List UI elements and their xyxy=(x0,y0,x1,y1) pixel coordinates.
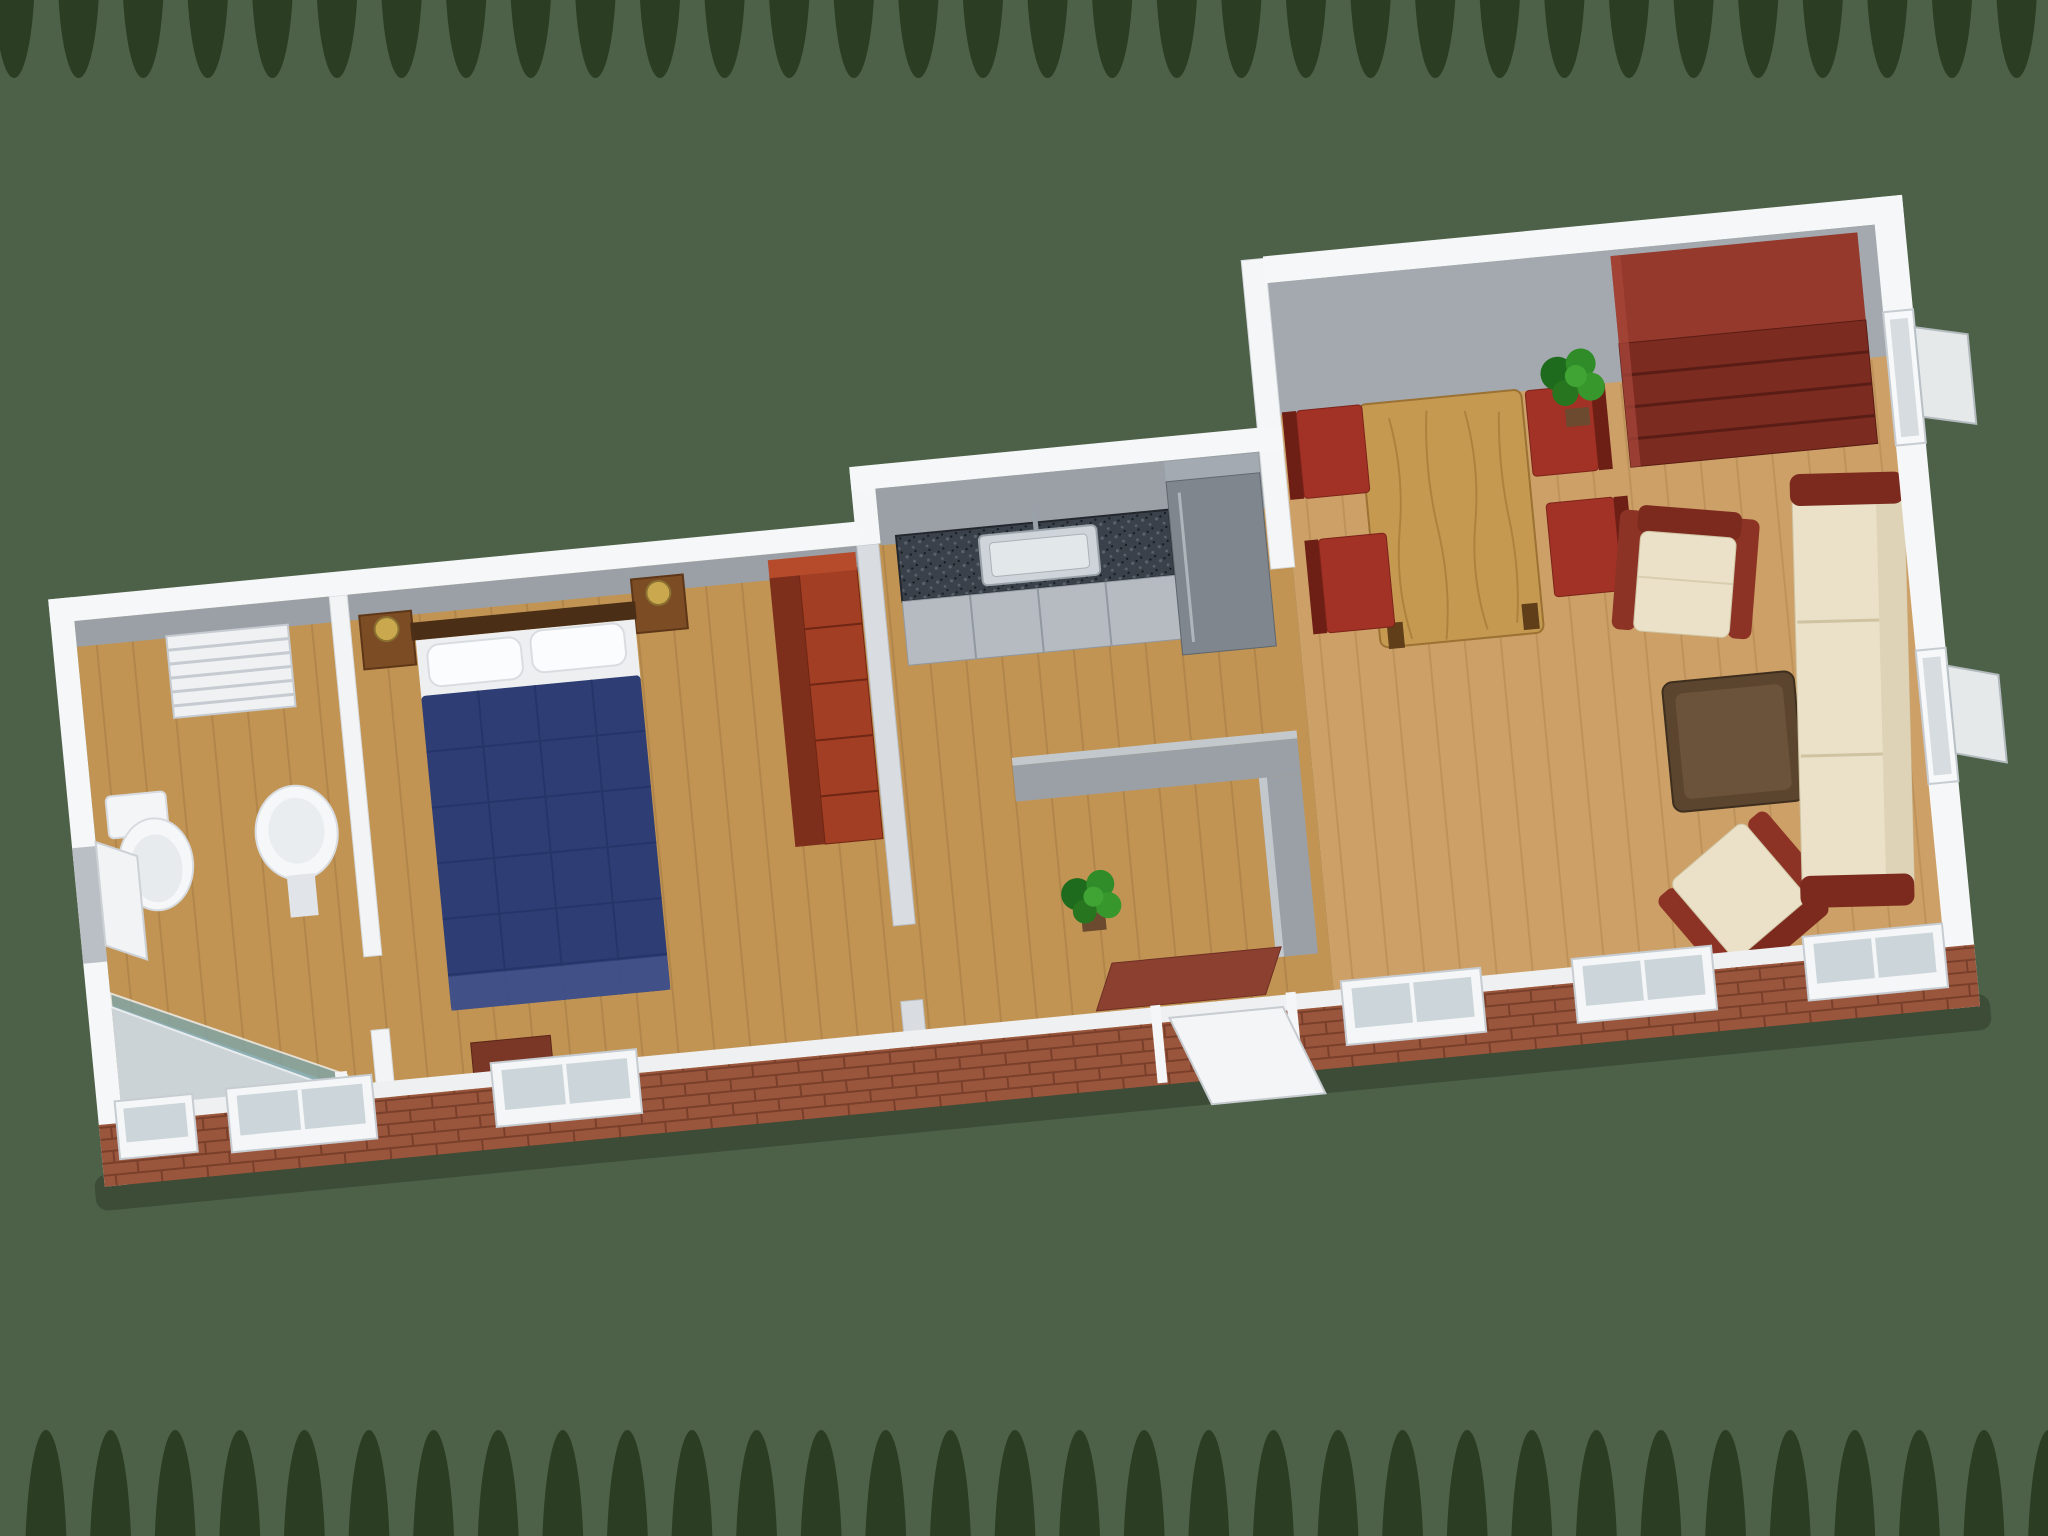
armchair-top xyxy=(1611,503,1760,640)
sofa-arm-top xyxy=(1789,471,1904,506)
dining-table-leg-right xyxy=(1521,603,1539,630)
coffee-table-top xyxy=(1675,684,1793,800)
bed-pillow-right xyxy=(529,622,627,673)
dining-chair-1-seat xyxy=(1296,405,1370,499)
sofa-arm-bottom xyxy=(1800,873,1915,908)
sofa xyxy=(1789,471,1914,908)
bed-pillow-left xyxy=(426,636,524,687)
sideboard-front xyxy=(1619,320,1878,467)
lamp-right xyxy=(645,580,671,606)
armchair-top-body xyxy=(1633,531,1737,638)
floor-plan-stage: 3D isometric floor plan render of a one-… xyxy=(0,0,2048,1536)
dining-chair-4-seat xyxy=(1546,497,1623,597)
dining-plant-pot xyxy=(1565,407,1591,427)
window-right-2-open-pane xyxy=(1947,661,2007,767)
fridge xyxy=(1166,473,1276,655)
kitchen-faucet xyxy=(1034,511,1036,531)
window-bottom-0-glass xyxy=(123,1103,188,1143)
sink-pedestal xyxy=(287,873,319,917)
lamp-left xyxy=(373,616,399,642)
window-right-1-open-pane xyxy=(1915,322,1977,429)
dining-chair-2-seat xyxy=(1318,533,1395,633)
floorplan-3d-render: 3D isometric floor plan render of a one-… xyxy=(0,0,2048,1536)
